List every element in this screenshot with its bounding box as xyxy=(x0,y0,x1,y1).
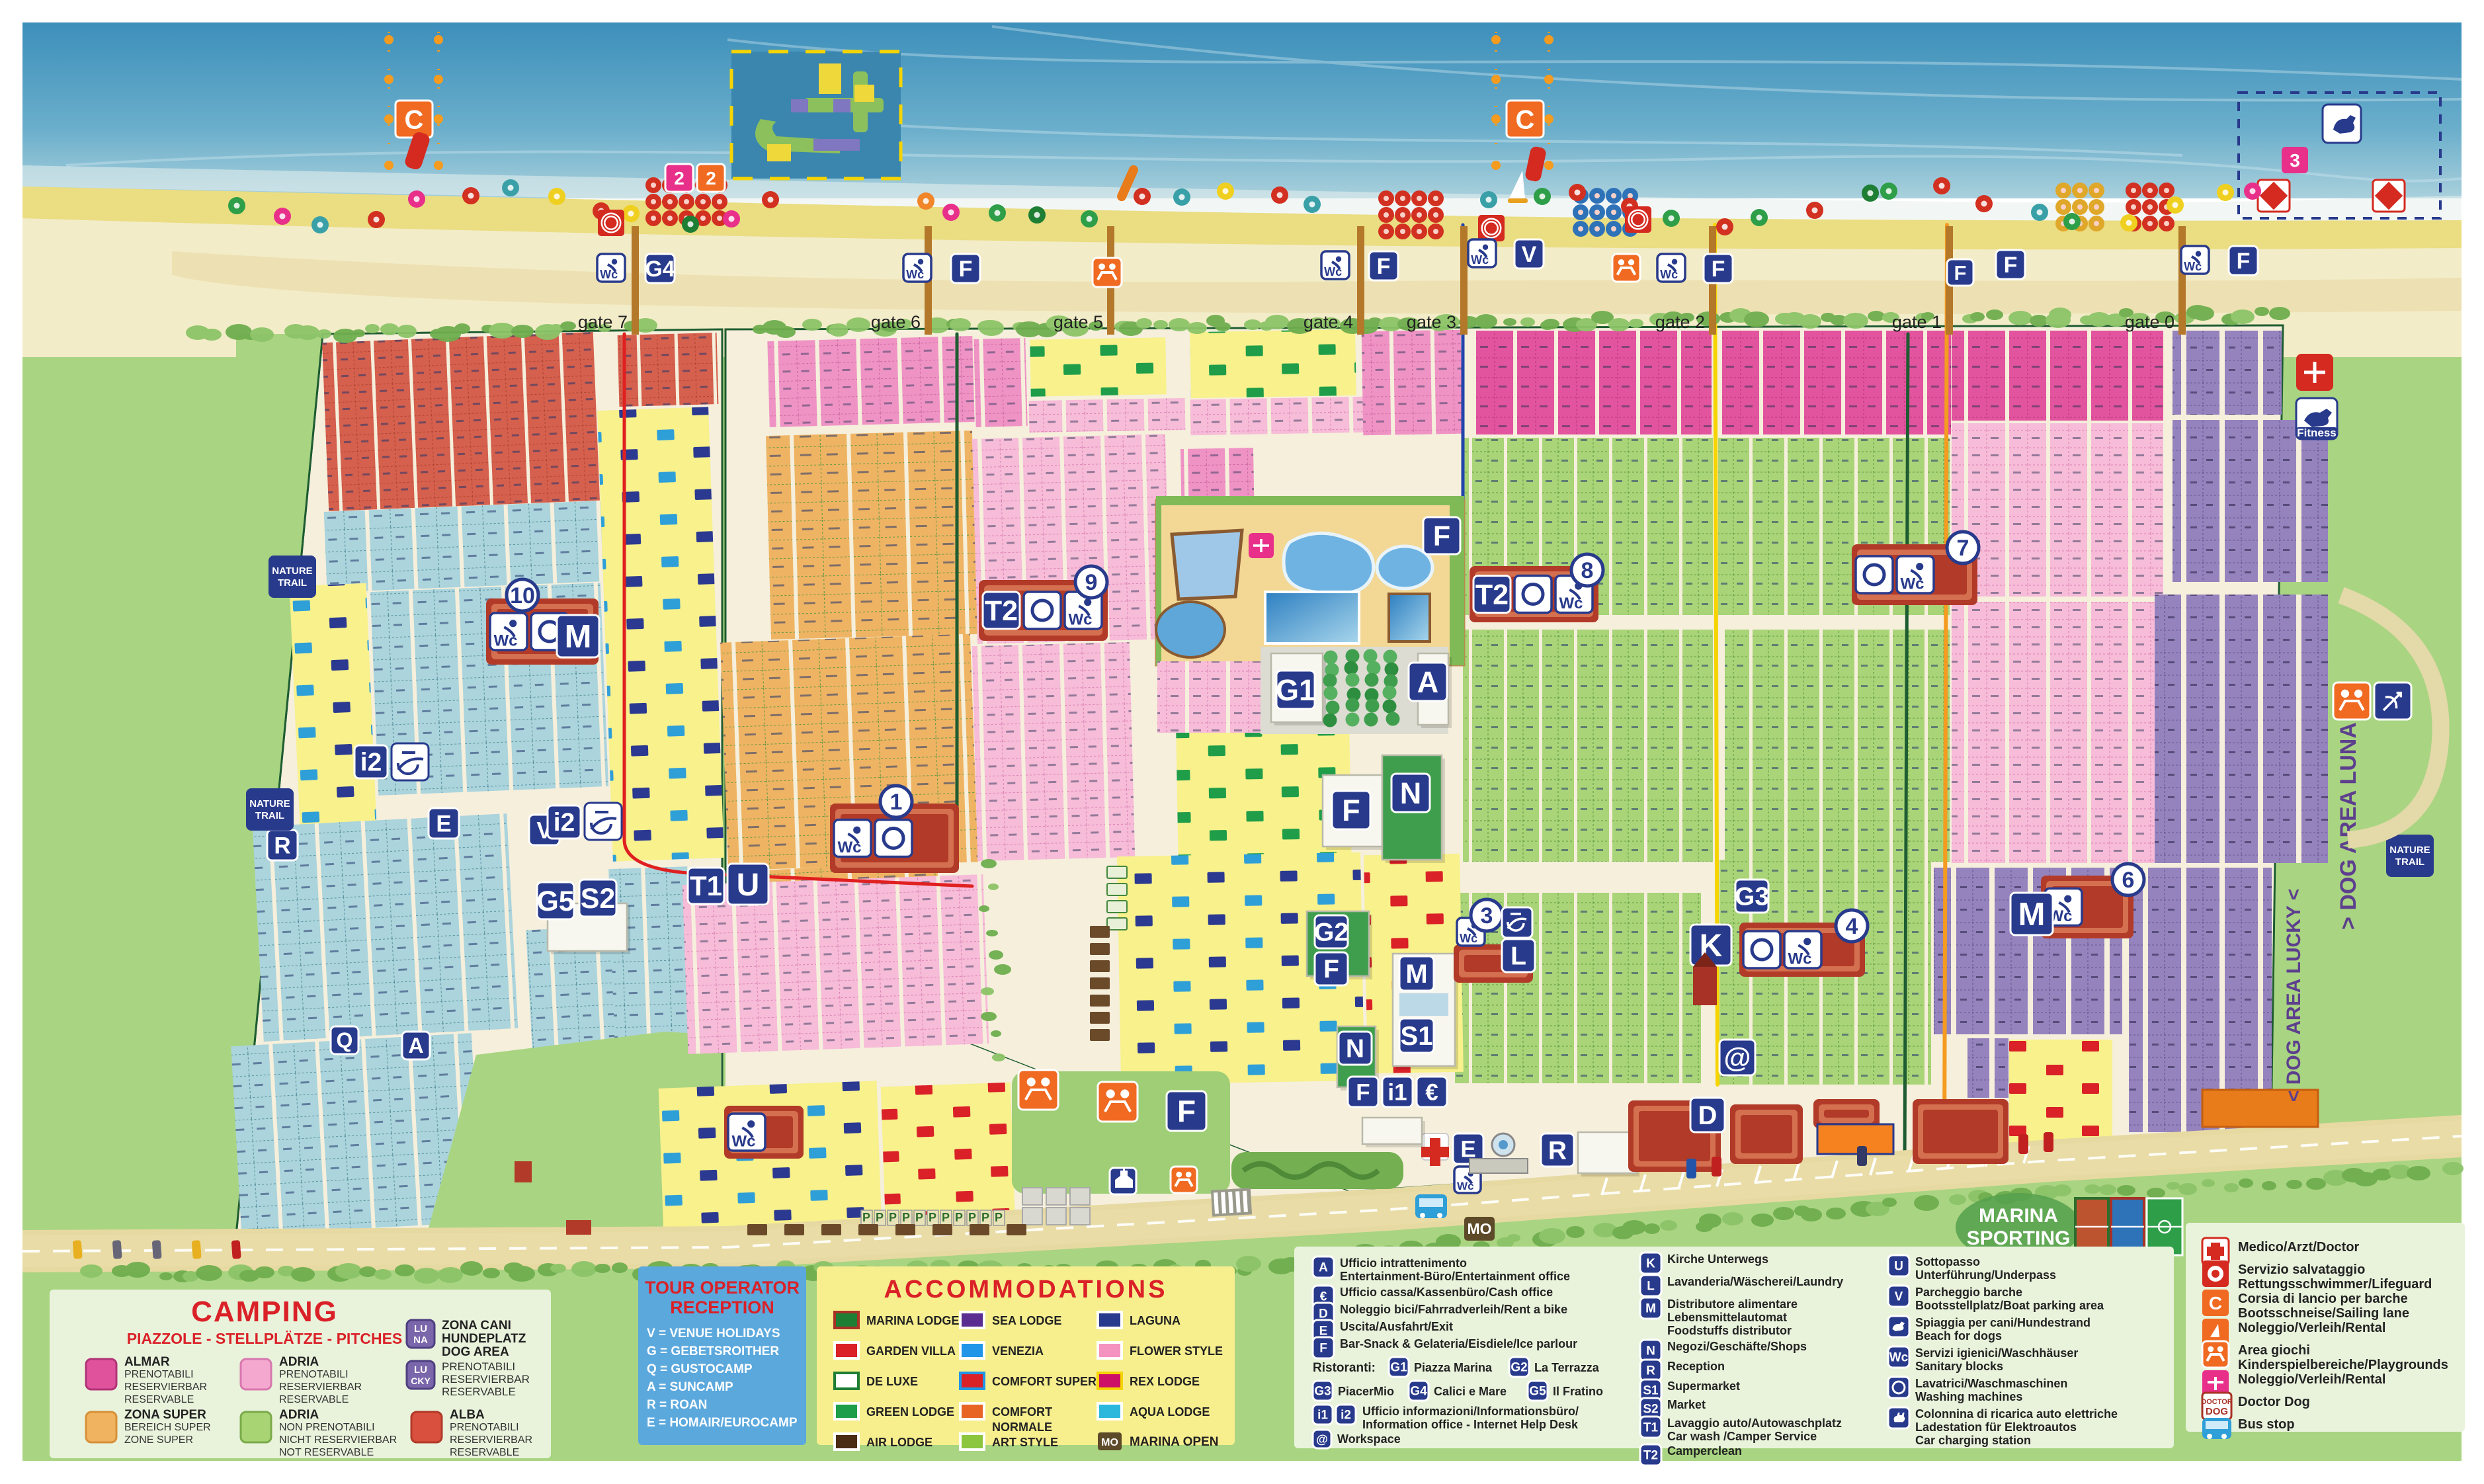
svg-text:Area giochi: Area giochi xyxy=(2238,1343,2310,1358)
svg-text:RESERVIERBAR: RESERVIERBAR xyxy=(442,1373,530,1385)
svg-text:S1: S1 xyxy=(1401,1022,1433,1051)
svg-text:SEA LODGE: SEA LODGE xyxy=(992,1314,1061,1327)
svg-text:ART STYLE: ART STYLE xyxy=(992,1436,1058,1449)
svg-text:gate 3: gate 3 xyxy=(1407,312,1456,332)
svg-text:2: 2 xyxy=(674,168,684,188)
svg-text:LU: LU xyxy=(414,1364,427,1376)
svg-text:DOG AREA: DOG AREA xyxy=(442,1345,509,1359)
svg-text:Lavanderia/Wäscherei/Laundry: Lavanderia/Wäscherei/Laundry xyxy=(1667,1275,1843,1288)
svg-text:Ladestation für Elektroautos: Ladestation für Elektroautos xyxy=(1915,1421,2077,1434)
svg-text:Ristoranti:: Ristoranti: xyxy=(1313,1361,1376,1375)
svg-text:10: 10 xyxy=(510,583,535,608)
svg-text:C: C xyxy=(1516,105,1535,134)
svg-text:> DOG AREA LUNA >: > DOG AREA LUNA > xyxy=(2336,704,2361,930)
svg-text:Reception: Reception xyxy=(1667,1360,1725,1373)
svg-text:Bus stop: Bus stop xyxy=(2238,1417,2295,1432)
svg-text:A: A xyxy=(1319,1261,1328,1275)
svg-text:ADRIA: ADRIA xyxy=(279,1355,319,1369)
svg-text:P: P xyxy=(902,1211,910,1224)
svg-text:MARINA: MARINA xyxy=(1979,1205,2058,1227)
svg-text:NATURE: NATURE xyxy=(272,565,312,577)
svg-text:P: P xyxy=(929,1211,936,1224)
svg-text:Entertainment-Büro/Entertainme: Entertainment-Büro/Entertainment office xyxy=(1340,1270,1570,1283)
svg-text:VENEZIA: VENEZIA xyxy=(992,1344,1044,1358)
svg-text:PRENOTABILI: PRENOTABILI xyxy=(279,1369,349,1380)
svg-text:3: 3 xyxy=(2290,150,2300,171)
svg-text:Kirche Unterwegs: Kirche Unterwegs xyxy=(1667,1253,1768,1266)
svg-text:G3: G3 xyxy=(1735,883,1769,911)
svg-text:i2: i2 xyxy=(360,749,382,777)
svg-text:MO: MO xyxy=(1467,1220,1491,1237)
svg-text:T1: T1 xyxy=(690,870,722,901)
svg-text:G2: G2 xyxy=(1314,919,1348,947)
svg-text:NICHT RESERVIERBAR: NICHT RESERVIERBAR xyxy=(279,1434,397,1446)
svg-text:E: E xyxy=(436,811,451,837)
svg-text:P: P xyxy=(915,1211,923,1224)
svg-text:V: V xyxy=(1522,242,1537,267)
svg-text:F: F xyxy=(1712,257,1725,282)
svg-text:AIR LODGE: AIR LODGE xyxy=(866,1436,932,1449)
svg-text:Camperclean: Camperclean xyxy=(1667,1444,1742,1458)
svg-text:F: F xyxy=(1377,254,1391,279)
svg-text:8: 8 xyxy=(1581,558,1594,583)
svg-text:ACCOMMODATIONS: ACCOMMODATIONS xyxy=(884,1276,1168,1303)
svg-text:Negozi/Geschäfte/Shops: Negozi/Geschäfte/Shops xyxy=(1667,1340,1807,1353)
svg-text:DOG: DOG xyxy=(2206,1406,2228,1417)
svg-text:Lavaggio auto/Autowaschplatz: Lavaggio auto/Autowaschplatz xyxy=(1667,1417,1842,1430)
svg-text:V: V xyxy=(1895,1290,1903,1304)
svg-text:MO: MO xyxy=(1101,1437,1118,1448)
svg-text:A: A xyxy=(1417,665,1439,699)
svg-text:FLOWER STYLE: FLOWER STYLE xyxy=(1130,1344,1223,1358)
svg-text:PRENOTABILI: PRENOTABILI xyxy=(450,1422,519,1433)
svg-text:P: P xyxy=(876,1211,884,1224)
svg-text:Kinderspielbereiche/Playground: Kinderspielbereiche/Playgrounds xyxy=(2238,1358,2448,1372)
svg-text:G3: G3 xyxy=(1314,1385,1331,1399)
svg-text:Unterführung/Underpass: Unterführung/Underpass xyxy=(1915,1268,2056,1282)
svg-text:N: N xyxy=(1646,1344,1655,1358)
svg-text:Lebensmittelautomat: Lebensmittelautomat xyxy=(1667,1311,1787,1324)
svg-text:N: N xyxy=(1400,776,1422,810)
svg-text:Servizio salvataggio: Servizio salvataggio xyxy=(2238,1262,2365,1277)
svg-text:NATURE: NATURE xyxy=(2389,845,2430,856)
svg-text:L: L xyxy=(1647,1280,1655,1294)
svg-text:P: P xyxy=(968,1211,976,1224)
svg-text:Sottopasso: Sottopasso xyxy=(1915,1255,1980,1268)
svg-text:U: U xyxy=(737,868,760,903)
svg-text:gate 5: gate 5 xyxy=(1054,312,1103,332)
svg-text:LU: LU xyxy=(414,1323,427,1335)
svg-text:Bootsschneise/Sailing lane: Bootsschneise/Sailing lane xyxy=(2238,1306,2409,1321)
svg-text:RESERVIERBAR: RESERVIERBAR xyxy=(124,1381,207,1393)
svg-text:Wc: Wc xyxy=(1901,575,1925,593)
svg-text:gate 6: gate 6 xyxy=(871,312,921,332)
svg-text:PiacerMio: PiacerMio xyxy=(1338,1385,1394,1398)
svg-text:i2: i2 xyxy=(1341,1409,1351,1422)
svg-text:Ufficio informazioni/Informati: Ufficio informazioni/Informationsbüro/ xyxy=(1362,1405,1579,1418)
svg-text:4: 4 xyxy=(1846,914,1858,939)
svg-text:TRAIL: TRAIL xyxy=(255,810,284,821)
svg-text:MARINA LODGE: MARINA LODGE xyxy=(866,1314,959,1327)
svg-text:N: N xyxy=(1346,1035,1364,1063)
svg-text:RESERVABLE: RESERVABLE xyxy=(442,1385,516,1398)
svg-text:A: A xyxy=(408,1034,423,1057)
svg-text:T2: T2 xyxy=(1475,579,1509,611)
svg-text:L: L xyxy=(1511,942,1526,971)
svg-text:i2: i2 xyxy=(554,809,575,837)
svg-text:Ufficio intrattenimento: Ufficio intrattenimento xyxy=(1340,1257,1467,1270)
svg-text:Calici e Mare: Calici e Mare xyxy=(1434,1385,1507,1398)
svg-text:Wc: Wc xyxy=(1889,1351,1909,1365)
svg-text:Spiaggia per cani/Hundestrand: Spiaggia per cani/Hundestrand xyxy=(1915,1316,2091,1329)
svg-text:Information office - Internet: Information office - Internet Help Desk xyxy=(1362,1418,1579,1431)
svg-text:@: @ xyxy=(1316,1432,1328,1446)
svg-text:F: F xyxy=(2004,253,2018,278)
svg-text:R: R xyxy=(1548,1137,1567,1165)
svg-text:Colonnina di ricarica auto ele: Colonnina di ricarica auto elettriche xyxy=(1915,1407,2118,1421)
svg-text:ZONA CANI: ZONA CANI xyxy=(442,1319,511,1333)
svg-text:P: P xyxy=(981,1211,989,1224)
svg-text:T2: T2 xyxy=(985,595,1018,627)
svg-text:F: F xyxy=(1319,1342,1327,1356)
svg-text:R = ROAN: R = ROAN xyxy=(647,1398,707,1412)
svg-text:Wc: Wc xyxy=(1069,610,1093,628)
svg-text:F: F xyxy=(1177,1094,1196,1128)
svg-text:Foodstuffs distributor: Foodstuffs distributor xyxy=(1667,1324,1792,1337)
svg-text:Wc: Wc xyxy=(494,632,518,649)
svg-text:COMFORT SUPER: COMFORT SUPER xyxy=(992,1375,1097,1388)
svg-text:REX LODGE: REX LODGE xyxy=(1130,1375,1200,1388)
svg-text:COMFORT: COMFORT xyxy=(992,1405,1052,1419)
svg-text:RESERVABLE: RESERVABLE xyxy=(279,1394,349,1405)
svg-text:La Terrazza: La Terrazza xyxy=(1534,1361,1600,1374)
svg-text:GARDEN VILLA: GARDEN VILLA xyxy=(866,1344,956,1358)
svg-text:Wc: Wc xyxy=(906,268,924,281)
svg-text:CAMPING: CAMPING xyxy=(191,1296,338,1328)
svg-text:M: M xyxy=(1405,960,1427,989)
svg-text:2: 2 xyxy=(706,168,716,188)
svg-text:R: R xyxy=(274,833,290,858)
svg-text:LAGUNA: LAGUNA xyxy=(1130,1314,1180,1327)
svg-text:Ufficio cassa/Kassenbüro/Cash: Ufficio cassa/Kassenbüro/Cash office xyxy=(1340,1286,1553,1299)
svg-text:C: C xyxy=(405,105,424,134)
svg-text:ALBA: ALBA xyxy=(450,1408,485,1422)
svg-text:RESERVABLE: RESERVABLE xyxy=(450,1447,519,1458)
svg-text:P: P xyxy=(942,1211,950,1224)
svg-text:Wc: Wc xyxy=(1559,595,1583,612)
svg-text:K: K xyxy=(1646,1257,1655,1271)
svg-text:F: F xyxy=(1342,794,1360,827)
svg-text:G4: G4 xyxy=(1410,1385,1427,1399)
svg-text:ADRIA: ADRIA xyxy=(279,1408,319,1422)
svg-text:Wc: Wc xyxy=(732,1132,756,1150)
svg-text:gate 4: gate 4 xyxy=(1304,312,1353,332)
svg-text:RESERVIERBAR: RESERVIERBAR xyxy=(450,1434,532,1446)
svg-text:Servizi igienici/Waschhäuser: Servizi igienici/Waschhäuser xyxy=(1915,1346,2078,1360)
svg-text:Wc: Wc xyxy=(2184,260,2202,273)
svg-text:Workspace: Workspace xyxy=(1337,1432,1401,1446)
svg-text:Wc: Wc xyxy=(1324,265,1342,278)
svg-text:NORMALE: NORMALE xyxy=(992,1421,1052,1434)
svg-text:F: F xyxy=(2237,249,2251,274)
svg-text:i1: i1 xyxy=(1387,1079,1407,1105)
svg-text:Wc: Wc xyxy=(1471,253,1489,267)
svg-text:PRENOTABILI: PRENOTABILI xyxy=(442,1360,515,1373)
svg-text:gate 2: gate 2 xyxy=(1655,312,1705,332)
svg-text:S2: S2 xyxy=(581,883,616,915)
svg-text:DE LUXE: DE LUXE xyxy=(866,1375,918,1388)
svg-text:U: U xyxy=(1894,1260,1903,1274)
svg-text:@: @ xyxy=(1724,1042,1751,1073)
svg-text:NON PRENOTABILI: NON PRENOTABILI xyxy=(279,1422,375,1433)
svg-text:Wc: Wc xyxy=(1660,268,1678,281)
svg-text:P: P xyxy=(889,1211,897,1224)
svg-text:TRAIL: TRAIL xyxy=(278,577,307,589)
svg-text:MARINA OPEN: MARINA OPEN xyxy=(1130,1435,1218,1449)
svg-text:HUNDEPLATZ: HUNDEPLATZ xyxy=(442,1332,526,1346)
svg-text:gate 1: gate 1 xyxy=(1892,312,1942,332)
svg-text:Piazza Marina: Piazza Marina xyxy=(1414,1361,1493,1374)
svg-text:< DOG AREA LUCKY <: < DOG AREA LUCKY < xyxy=(2283,889,2305,1102)
svg-text:PRENOTABILI: PRENOTABILI xyxy=(124,1369,194,1380)
svg-text:BEREICH SUPER: BEREICH SUPER xyxy=(124,1422,211,1433)
svg-text:3: 3 xyxy=(1481,903,1493,928)
svg-text:Doctor Dog: Doctor Dog xyxy=(2238,1395,2310,1409)
svg-text:M: M xyxy=(1645,1302,1656,1316)
svg-text:Wc: Wc xyxy=(1457,1180,1474,1192)
svg-text:GREEN LODGE: GREEN LODGE xyxy=(866,1405,954,1419)
svg-text:Sanitary blocks: Sanitary blocks xyxy=(1915,1360,2003,1373)
svg-text:V = VENUE HOLIDAYS: V = VENUE HOLIDAYS xyxy=(647,1327,780,1340)
svg-text:G1: G1 xyxy=(1390,1361,1407,1375)
svg-text:F: F xyxy=(1433,520,1450,552)
svg-text:M: M xyxy=(2018,897,2046,932)
svg-text:Distributore alimentare: Distributore alimentare xyxy=(1667,1298,1798,1311)
svg-text:Washing machines: Washing machines xyxy=(1915,1390,2022,1403)
svg-text:TRAIL: TRAIL xyxy=(2395,856,2424,868)
svg-text:gate 0: gate 0 xyxy=(2125,312,2174,332)
svg-text:AQUA LODGE: AQUA LODGE xyxy=(1130,1405,1210,1419)
svg-text:M: M xyxy=(565,619,592,655)
svg-text:ALMAR: ALMAR xyxy=(124,1355,170,1369)
svg-text:CKY: CKY xyxy=(411,1376,431,1386)
svg-text:Bar-Snack & Gelateria/Eisdiele: Bar-Snack & Gelateria/Eisdiele/Ice parlo… xyxy=(1340,1337,1577,1350)
svg-text:Noleggio/Verleih/Rental: Noleggio/Verleih/Rental xyxy=(2238,1372,2385,1387)
svg-text:ZONA SUPER: ZONA SUPER xyxy=(124,1408,206,1422)
svg-text:Q = GUSTOCAMP: Q = GUSTOCAMP xyxy=(647,1362,753,1376)
svg-text:F: F xyxy=(1954,261,1967,284)
svg-text:Parcheggio barche: Parcheggio barche xyxy=(1915,1286,2022,1299)
svg-text:G5: G5 xyxy=(1529,1385,1546,1399)
svg-text:F: F xyxy=(1323,956,1339,984)
svg-text:Noleggio/Verleih/Rental: Noleggio/Verleih/Rental xyxy=(2238,1321,2385,1335)
svg-text:R: R xyxy=(1646,1364,1655,1378)
svg-text:Wc: Wc xyxy=(1788,950,1812,968)
svg-text:G4: G4 xyxy=(645,257,675,282)
svg-text:NOT RESERVABLE: NOT RESERVABLE xyxy=(279,1447,374,1458)
svg-text:Beach for dogs: Beach for dogs xyxy=(1915,1329,2002,1342)
svg-text:Medico/Arzt/Doctor: Medico/Arzt/Doctor xyxy=(2238,1240,2360,1255)
svg-text:D: D xyxy=(1698,1101,1718,1130)
svg-text:G = GEBETSROITHER: G = GEBETSROITHER xyxy=(647,1344,779,1358)
svg-text:P: P xyxy=(995,1211,1003,1224)
svg-text:PIAZZOLE - STELLPLÄTZE - PITCH: PIAZZOLE - STELLPLÄTZE - PITCHES xyxy=(127,1330,403,1347)
svg-text:Uscita/Ausfahrt/Exit: Uscita/Ausfahrt/Exit xyxy=(1340,1320,1453,1333)
svg-text:P: P xyxy=(955,1211,963,1224)
svg-text:Car wash /Camper Service: Car wash /Camper Service xyxy=(1667,1430,1817,1443)
svg-text:C: C xyxy=(2209,1293,2222,1313)
svg-text:DOCTOR: DOCTOR xyxy=(2201,1398,2233,1406)
svg-text:Wc: Wc xyxy=(1460,932,1477,945)
svg-text:Market: Market xyxy=(1667,1398,1706,1411)
svg-text:1: 1 xyxy=(890,790,903,815)
svg-text:NA: NA xyxy=(413,1335,428,1346)
svg-text:Wc: Wc xyxy=(838,839,862,856)
svg-text:Fitness: Fitness xyxy=(2297,427,2337,439)
svg-text:gate 7: gate 7 xyxy=(578,312,628,332)
svg-text:Q: Q xyxy=(337,1028,353,1052)
svg-text:S1: S1 xyxy=(1643,1384,1659,1398)
svg-text:Corsia di lancio per barche: Corsia di lancio per barche xyxy=(2238,1292,2408,1306)
svg-text:Lavatrici/Waschmaschinen: Lavatrici/Waschmaschinen xyxy=(1915,1377,2067,1390)
svg-text:G5: G5 xyxy=(536,886,574,917)
svg-text:T1: T1 xyxy=(1643,1421,1659,1435)
svg-text:Car charging station: Car charging station xyxy=(1915,1434,2031,1447)
svg-text:i1: i1 xyxy=(1317,1409,1328,1422)
svg-text:S2: S2 xyxy=(1643,1403,1658,1417)
svg-text:A = SUNCAMP: A = SUNCAMP xyxy=(647,1380,733,1394)
svg-text:Rettungsschwimmer/Lifeguard: Rettungsschwimmer/Lifeguard xyxy=(2238,1277,2432,1292)
svg-text:Wc: Wc xyxy=(600,268,618,281)
svg-text:F: F xyxy=(959,257,973,282)
svg-text:Supermarket: Supermarket xyxy=(1667,1380,1740,1393)
svg-text:P: P xyxy=(862,1211,870,1224)
svg-text:Noleggio bici/Fahrradverleih/R: Noleggio bici/Fahrradverleih/Rent a bike xyxy=(1340,1303,1567,1316)
svg-text:SPORTING: SPORTING xyxy=(1967,1227,2071,1249)
svg-text:Il Fratino: Il Fratino xyxy=(1553,1385,1603,1398)
svg-text:€: € xyxy=(1425,1079,1438,1105)
svg-text:RECEPTION: RECEPTION xyxy=(670,1298,774,1317)
svg-text:7: 7 xyxy=(1957,536,1969,561)
svg-text:G1: G1 xyxy=(1276,673,1315,707)
svg-text:6: 6 xyxy=(2122,868,2135,893)
svg-text:NATURE: NATURE xyxy=(249,798,290,809)
svg-text:TOUR OPERATOR: TOUR OPERATOR xyxy=(645,1278,800,1298)
svg-text:ZONE SUPER: ZONE SUPER xyxy=(124,1434,193,1446)
svg-text:Bootsstellplatz/Boat parking a: Bootsstellplatz/Boat parking area xyxy=(1915,1299,2104,1312)
svg-text:E = HOMAIR/EUROCAMP: E = HOMAIR/EUROCAMP xyxy=(647,1416,798,1430)
svg-text:T2: T2 xyxy=(1643,1449,1658,1463)
svg-text:G2: G2 xyxy=(1511,1361,1527,1375)
svg-text:RESERVIERBAR: RESERVIERBAR xyxy=(279,1381,362,1393)
svg-text:RESERVABLE: RESERVABLE xyxy=(124,1394,194,1405)
svg-text:9: 9 xyxy=(1085,570,1098,595)
svg-text:F: F xyxy=(1356,1079,1370,1105)
